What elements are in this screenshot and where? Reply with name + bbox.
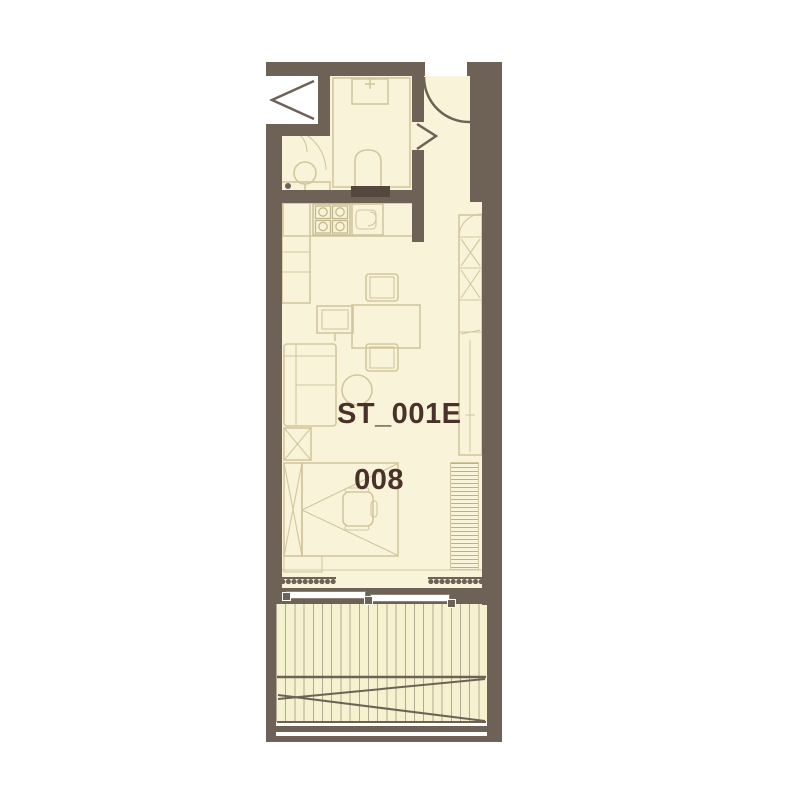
wall-balcony-left — [266, 604, 276, 741]
sliding-door-handle — [447, 599, 456, 608]
floor-plan-canvas: ST_001E 008 — [0, 0, 800, 800]
sliding-door-handle — [282, 592, 291, 601]
unit-label: ST_001E 008 — [337, 398, 461, 497]
toilet-cistern — [351, 186, 390, 197]
sliding-door-panel-left — [286, 591, 366, 599]
balcony-decking — [276, 604, 487, 722]
unit-number: 008 — [354, 464, 404, 496]
wall-top-left — [266, 62, 425, 76]
balcony-railing-edge — [266, 736, 502, 742]
unit-code: ST_001E — [337, 398, 461, 430]
blind-scallops-right — [428, 579, 484, 586]
blind-scallops-left — [280, 579, 336, 586]
wall-right-upper — [470, 62, 502, 202]
balcony-railing-outer — [266, 726, 502, 732]
sliding-door-panel-right — [370, 594, 450, 602]
sliding-door-handle — [364, 596, 373, 605]
wall-right-lower — [482, 195, 502, 605]
shaft-niche — [266, 76, 320, 124]
wall-shaft-right — [318, 76, 330, 136]
wall-left — [266, 124, 282, 604]
wall-bath-hall-upper — [412, 76, 424, 122]
entry-door-opening — [425, 62, 467, 76]
wall-balcony-right — [487, 604, 502, 741]
